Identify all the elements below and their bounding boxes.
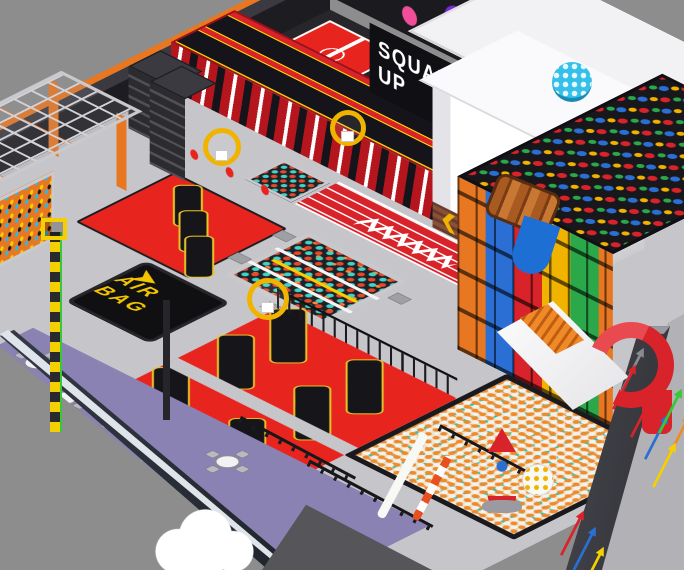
ring-cube xyxy=(341,131,354,142)
rocket-base xyxy=(482,500,522,513)
ring-cube xyxy=(215,150,228,161)
dunk-trampoline-bed xyxy=(184,236,214,278)
truss-post xyxy=(116,112,126,191)
mast-frame xyxy=(41,218,67,240)
dome-ball-topper xyxy=(552,62,592,102)
dotted-ball xyxy=(522,464,554,496)
hanging-ring xyxy=(203,128,241,166)
rocket-prop xyxy=(488,450,516,504)
ring-cube xyxy=(261,302,274,313)
hanging-ring xyxy=(330,110,366,146)
support-pole xyxy=(163,300,170,420)
arrow-decal-icon xyxy=(442,210,455,235)
hanging-ring xyxy=(247,278,289,320)
climbing-mast xyxy=(50,232,62,432)
cloud-decor xyxy=(145,508,255,570)
tube-slide-exit xyxy=(642,390,672,434)
trampoline-bed xyxy=(346,359,384,414)
trampoline-park-render: SQUAD UP xyxy=(0,0,684,570)
